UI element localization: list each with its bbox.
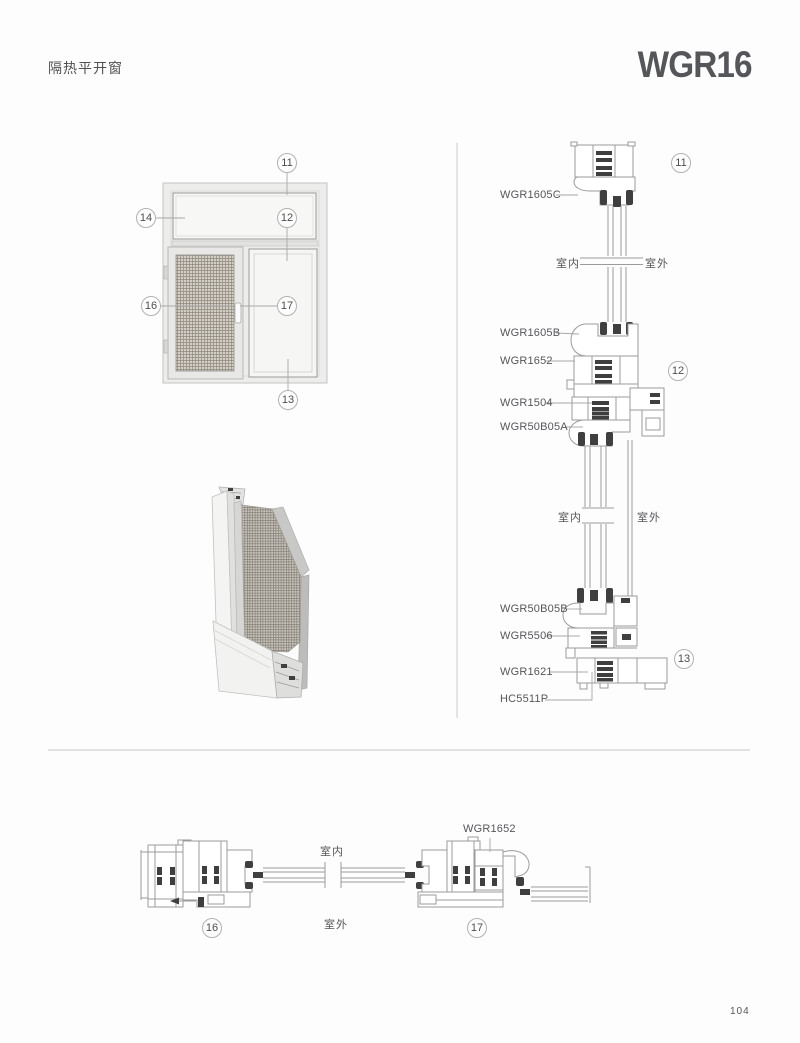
callout-16-section: 16 — [202, 918, 222, 938]
indoor-marker-lower: 室内 — [558, 509, 582, 525]
page-subtitle: 隔热平开窗 — [48, 58, 123, 78]
isometric-corner-drawing — [212, 487, 309, 698]
part-label-wgr1652-h: WGR1652 — [463, 823, 516, 835]
catalog-page: .ln{fill:none;stroke:#9b9b9b;stroke-widt… — [0, 0, 800, 1043]
outdoor-marker-plan: 室外 — [324, 916, 348, 932]
horizontal-glass-lines — [263, 862, 405, 888]
callout-17-elevation: 17 — [277, 296, 297, 316]
lower-glass-lines — [582, 446, 614, 588]
callout-12-section: 12 — [668, 361, 688, 381]
series-title: WGR16 — [638, 44, 752, 86]
callout-17-section: 17 — [467, 918, 487, 938]
part-label-wgr1605b: WGR1605B — [500, 327, 560, 339]
part-label-wgr1652-v: WGR1652 — [500, 355, 553, 367]
callout-13-section: 13 — [674, 649, 694, 669]
outdoor-marker-upper: 室外 — [645, 255, 669, 271]
part-label-wgr5506: WGR5506 — [500, 630, 553, 642]
callout-11-section: 11 — [671, 153, 691, 173]
part-label-wgr1504: WGR1504 — [500, 397, 553, 409]
callout-13-elevation: 13 — [278, 390, 298, 410]
window-elevation-drawing — [156, 173, 327, 390]
callout-11-elevation: 11 — [277, 153, 297, 173]
callout-16-elevation: 16 — [141, 296, 161, 316]
callout-14-elevation: 14 — [136, 208, 156, 228]
part-label-wgr50b05a: WGR50B05A — [500, 421, 568, 433]
callout-12-elevation: 12 — [277, 208, 297, 228]
page-number: 104 — [730, 1006, 750, 1017]
part-label-wgr50b05b: WGR50B05B — [500, 603, 568, 615]
outdoor-marker-lower: 室外 — [637, 509, 661, 525]
part-label-hc5511p: HC5511P — [500, 693, 548, 705]
part-label-wgr1605c: WGR1605C — [500, 189, 561, 201]
indoor-marker-upper: 室内 — [556, 255, 580, 271]
upper-glass-lines — [580, 206, 643, 322]
horizontal-section-drawing — [141, 837, 590, 907]
part-label-wgr1621: WGR1621 — [500, 666, 553, 678]
indoor-marker-plan: 室内 — [320, 843, 344, 859]
